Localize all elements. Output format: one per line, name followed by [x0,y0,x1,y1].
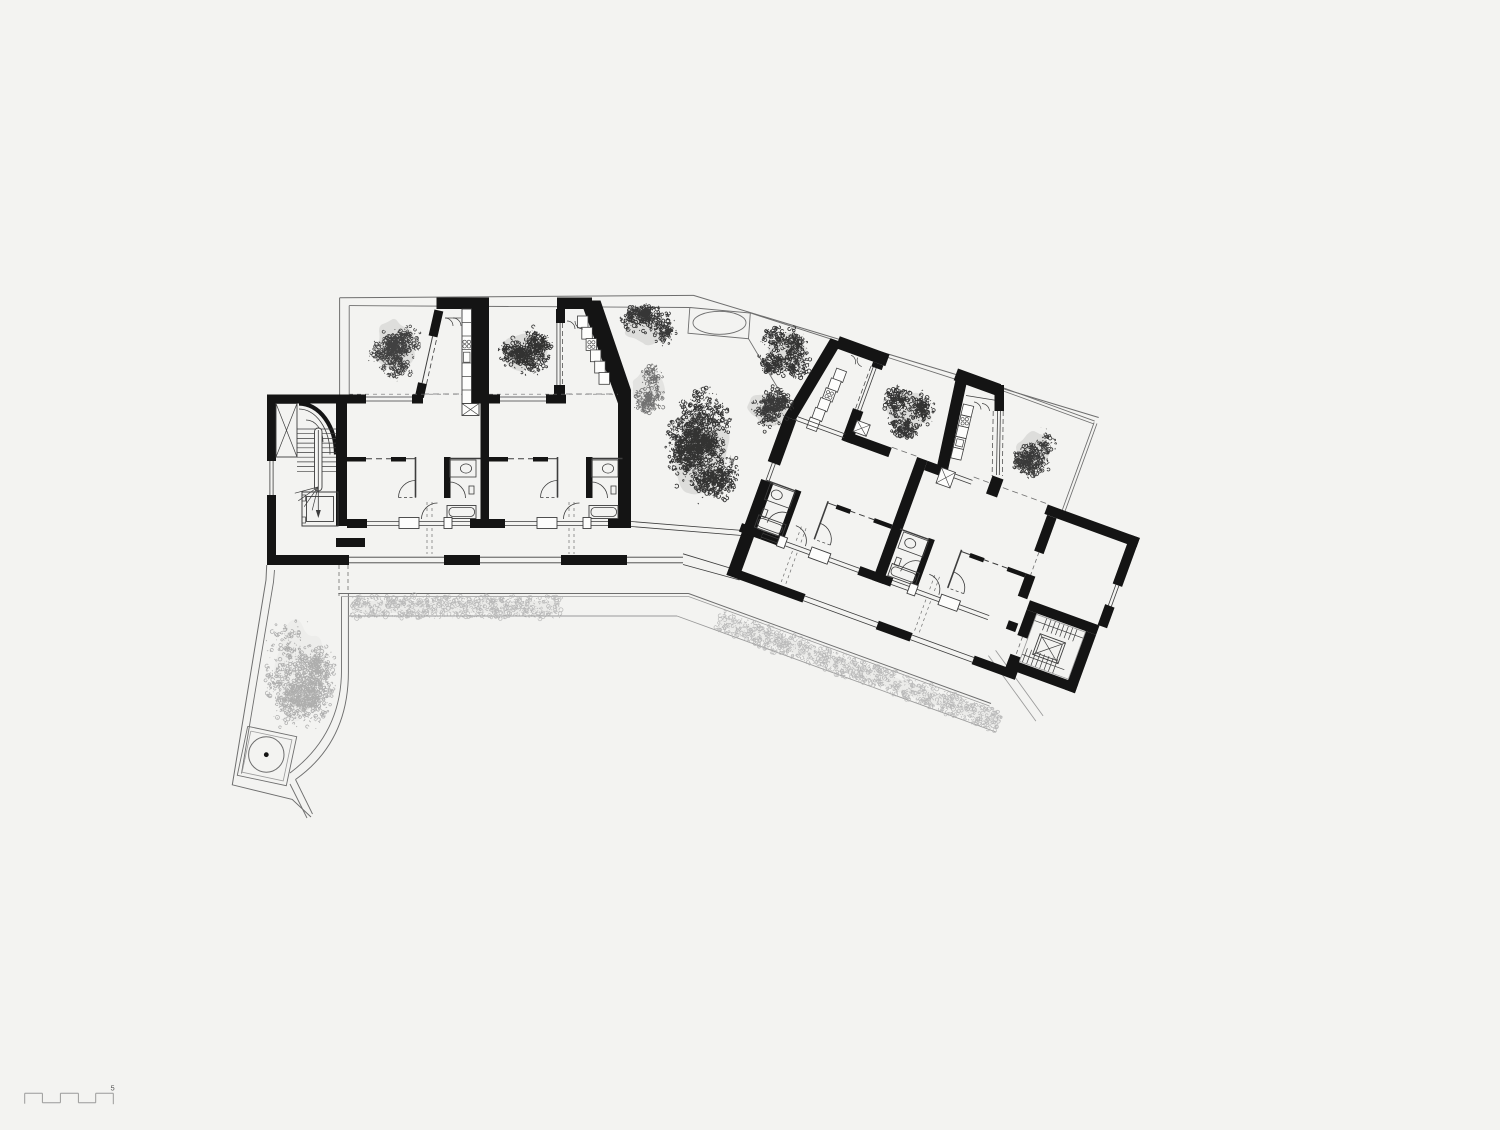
svg-text:5: 5 [111,1084,115,1093]
